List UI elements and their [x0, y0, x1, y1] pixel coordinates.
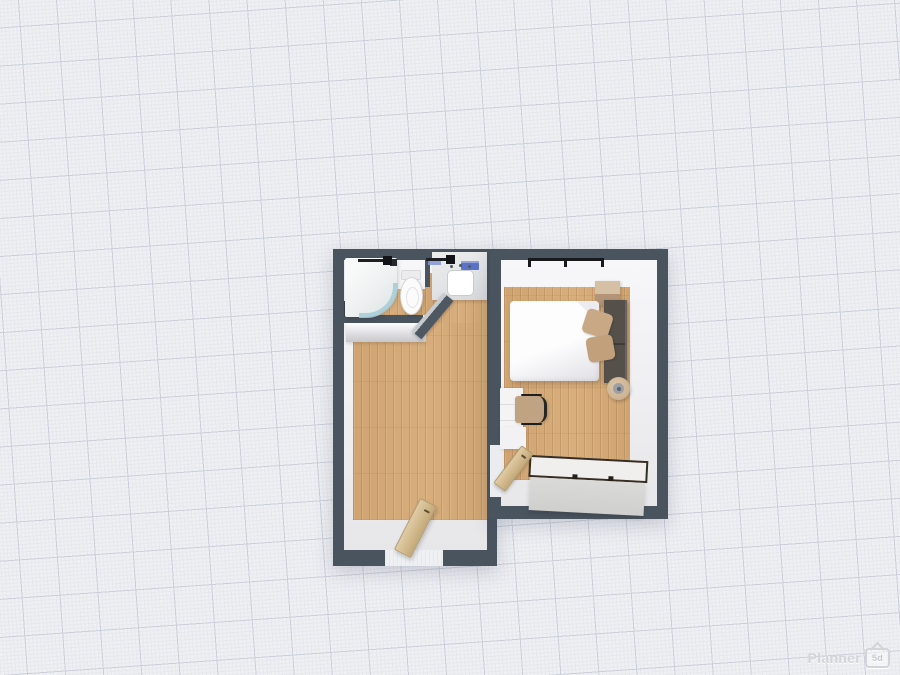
- toilet[interactable]: [400, 277, 423, 315]
- sink-basin: [447, 270, 474, 296]
- entry-doorway-opening[interactable]: [385, 550, 443, 566]
- nightstand-top: [595, 281, 620, 294]
- floor-plan[interactable]: [333, 249, 668, 566]
- left-room-walls[interactable]: [333, 249, 497, 566]
- planner5d-logo-icon: 5d: [865, 648, 890, 668]
- towel-bar-mount: [446, 255, 455, 264]
- desk-chair[interactable]: [515, 396, 547, 423]
- pillow[interactable]: [585, 334, 616, 363]
- window-frame-tick: [528, 258, 531, 267]
- planner-canvas[interactable]: Planner 5d: [0, 0, 900, 675]
- planner5d-watermark: Planner 5d: [808, 648, 890, 668]
- watermark-brand: Planner: [808, 650, 861, 666]
- window[interactable]: [528, 258, 604, 269]
- lamp-center: [617, 387, 621, 391]
- bedroom-doorway-opening[interactable]: [490, 445, 501, 497]
- living-room-wood-floor[interactable]: [353, 323, 487, 520]
- faucet-handles: [449, 264, 473, 268]
- window-frame-tick: [564, 258, 567, 267]
- shower-bar-mount: [383, 256, 392, 265]
- stool-lamp[interactable]: [607, 377, 630, 400]
- chest-front: [529, 477, 646, 516]
- dresser-chest[interactable]: [527, 455, 649, 516]
- window-frame-tick: [601, 258, 604, 267]
- bedroom-walls[interactable]: [490, 249, 668, 519]
